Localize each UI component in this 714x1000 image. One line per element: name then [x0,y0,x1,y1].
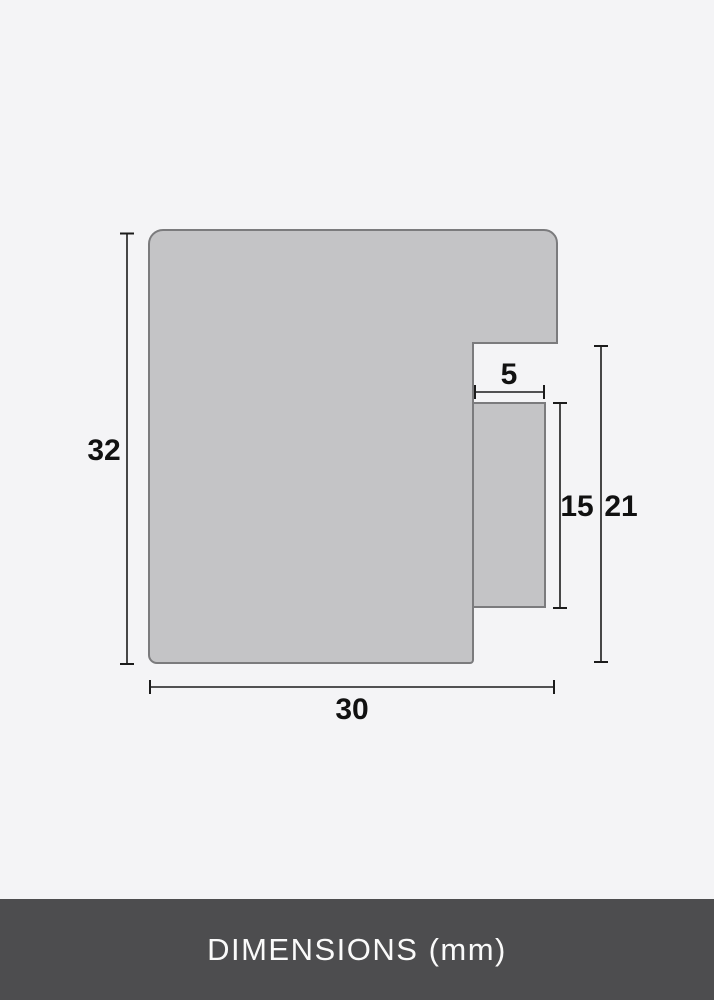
dimension-lip-height: 15 [553,403,594,608]
dimension-label-5: 5 [501,358,518,391]
footer-bar: DIMENSIONS (mm) [0,899,714,1000]
dimension-total-height: 32 [87,234,134,665]
dimension-label-15: 15 [560,490,593,523]
frame-profile-diagram-page: 32 5 15 21 30 [0,0,714,1000]
dimension-back-height: 21 [594,346,638,662]
frame-profile-diagram: 32 5 15 21 30 [0,0,714,1000]
dimension-label-21: 21 [604,490,637,523]
dimension-label-30: 30 [335,693,368,726]
footer-title: DIMENSIONS (mm) [207,932,507,968]
dimension-label-32: 32 [87,434,120,467]
frame-profile-rabbet-lip [473,403,545,607]
dimension-total-width: 30 [150,680,554,726]
dimension-rabbet-width: 5 [475,358,544,399]
